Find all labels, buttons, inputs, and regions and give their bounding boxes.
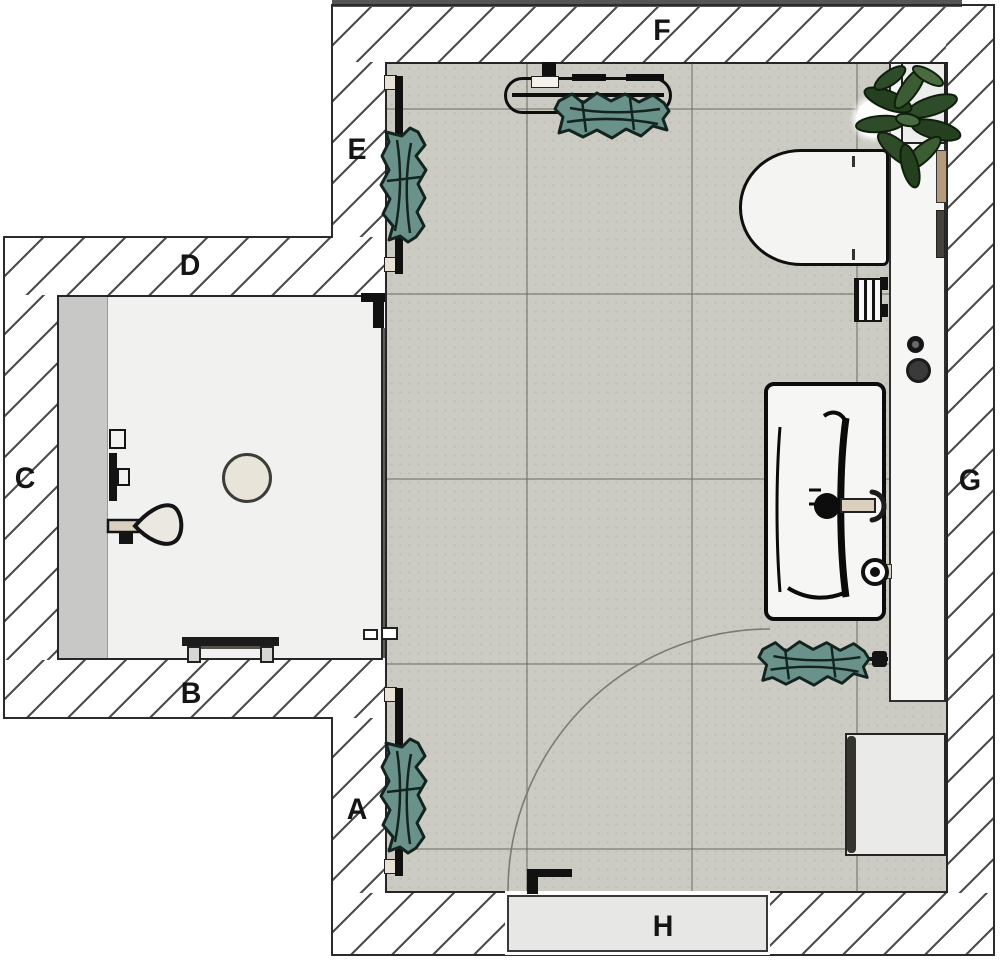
laundry-box bbox=[845, 733, 946, 856]
shower-bench-edge bbox=[201, 646, 260, 649]
screen-handle bbox=[381, 627, 398, 640]
wall-knob-small bbox=[907, 336, 924, 353]
shower-drain bbox=[222, 453, 272, 503]
wall-label-a: A bbox=[347, 793, 368, 827]
striped-accessory-cap bbox=[880, 304, 888, 317]
sink-drain bbox=[814, 493, 840, 519]
outline-top bbox=[331, 4, 994, 6]
towel-icon bbox=[378, 727, 436, 867]
door-swing-arc bbox=[505, 626, 773, 894]
faucet-bracket bbox=[864, 488, 894, 524]
towel-icon bbox=[378, 116, 436, 256]
wall-annex-left bbox=[4, 295, 57, 718]
shower-rail bbox=[109, 453, 117, 501]
radiator-segment bbox=[626, 74, 664, 81]
glass-screen bbox=[383, 328, 385, 658]
outline-annex-top bbox=[3, 236, 333, 238]
outline-left-upper bbox=[331, 4, 333, 237]
shower-head-icon bbox=[105, 495, 185, 555]
screen-handle bbox=[363, 629, 378, 640]
shower-bench-leg bbox=[260, 646, 274, 663]
shower-bench-top bbox=[182, 637, 279, 646]
toilet-seat-hinge bbox=[852, 249, 855, 260]
outline-left-lower bbox=[331, 717, 333, 956]
wall-label-e: E bbox=[347, 133, 366, 167]
wall-label-c: C bbox=[15, 462, 36, 496]
shower-control bbox=[109, 429, 126, 449]
outline-annex-bottom bbox=[3, 717, 333, 719]
shower-bench-leg bbox=[187, 646, 201, 663]
wall-label-h: H bbox=[653, 910, 674, 944]
bathroom-floor-plan: A B C D E F G H bbox=[0, 0, 1000, 961]
shower-rail-holder bbox=[117, 468, 130, 486]
wall-valve-dot bbox=[870, 567, 880, 577]
wall-knob-large bbox=[906, 358, 931, 383]
laundry-box-shadow bbox=[847, 736, 856, 853]
glass-screen-hinge bbox=[373, 300, 384, 328]
door-leaf bbox=[507, 895, 768, 952]
door-handle bbox=[527, 877, 538, 894]
door-handle bbox=[527, 869, 572, 877]
outline-annex-left bbox=[3, 236, 5, 719]
toilet-seat-hinge bbox=[852, 156, 855, 167]
striped-accessory bbox=[854, 278, 882, 322]
towel-icon bbox=[552, 86, 674, 142]
dark-accessory bbox=[936, 210, 945, 258]
outline-right bbox=[993, 4, 995, 956]
wall-label-g: G bbox=[959, 464, 981, 498]
wall-label-b: B bbox=[181, 677, 202, 711]
plant-icon bbox=[858, 58, 958, 193]
wall-label-f: F bbox=[653, 14, 670, 48]
striped-accessory-cap bbox=[880, 277, 888, 290]
radiator-segment bbox=[572, 74, 606, 81]
towel-icon bbox=[756, 632, 874, 692]
wall-label-d: D bbox=[180, 249, 201, 283]
shower-wall-panel bbox=[59, 297, 108, 658]
towel-rail-knob bbox=[872, 651, 887, 667]
